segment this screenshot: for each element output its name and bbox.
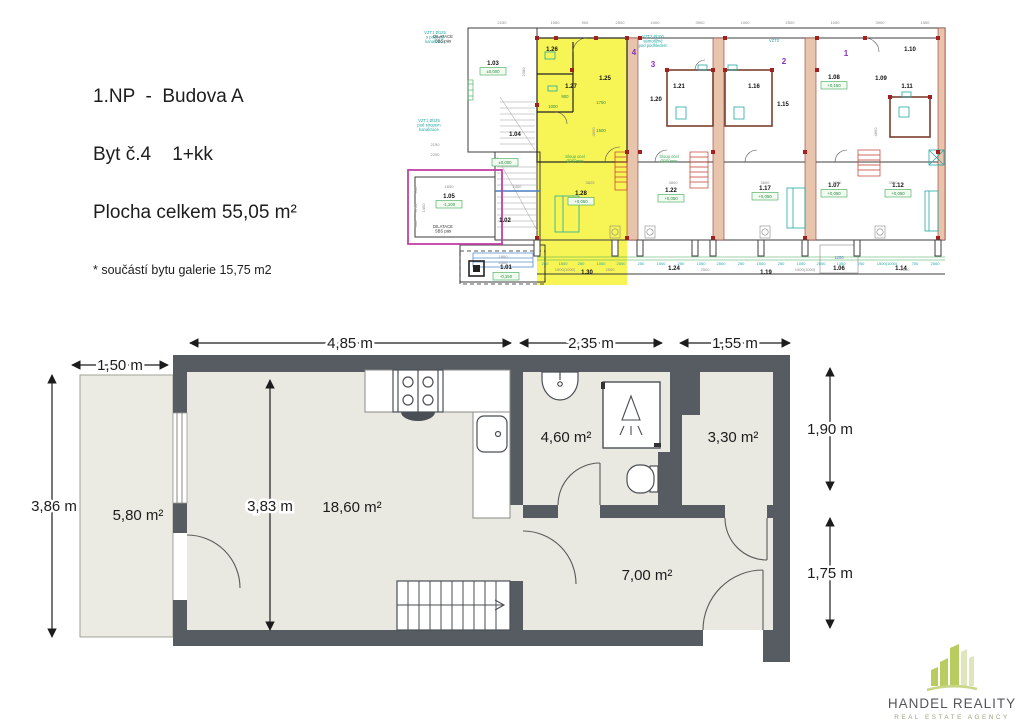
top-dim-10: 1550 bbox=[921, 20, 931, 25]
interior-dim-5: 1800 bbox=[499, 254, 509, 259]
bottom-dim-6: 1500 bbox=[657, 261, 667, 266]
bottom-dim-15: 1350 bbox=[837, 261, 847, 266]
room-label-1.02: 1.02 bbox=[499, 218, 511, 224]
elevation-6: +0,050 bbox=[758, 194, 772, 199]
left-dim-5: 4850 bbox=[591, 127, 596, 137]
elevation-8: +0,050 bbox=[827, 191, 841, 196]
main-floor-plan: 4,85 m 2,35 m 1,55 m 1,50 m 3,86 m 3,83 … bbox=[30, 330, 860, 670]
site-plan-drawing: 1.031.041.051.021.011.261.271.251.281.30… bbox=[405, 12, 1020, 297]
interior-dim-2: 3600 bbox=[761, 180, 771, 185]
interior-dim-4: 2400 bbox=[513, 184, 523, 189]
shower bbox=[601, 382, 661, 448]
top-dim-0: 2150 bbox=[498, 20, 508, 25]
elevation-3: -0,150 bbox=[500, 274, 513, 279]
bottom-dim-1: 1500 bbox=[559, 261, 569, 266]
room-label-1.20: 1.20 bbox=[650, 97, 662, 103]
top-dim-3: 2500 bbox=[616, 20, 626, 25]
area-hall: 7,00 m² bbox=[622, 567, 673, 584]
green-dim-2: 900 bbox=[561, 94, 569, 99]
dim-width-room: 1,55 m bbox=[712, 335, 758, 352]
room-label-1.10: 1.10 bbox=[904, 47, 916, 53]
elevation-0: ±0,000 bbox=[486, 69, 500, 74]
room-label-1.21: 1.21 bbox=[673, 84, 685, 90]
interior-dim-10: 2250 bbox=[431, 152, 441, 157]
unit-number-1: 1 bbox=[844, 49, 849, 58]
bottom-dim-8: 1050 bbox=[697, 261, 707, 266]
room-label-1.15: 1.15 bbox=[777, 102, 789, 108]
row2-dim-2: 2500 bbox=[701, 267, 711, 272]
unit-number-2: 2 bbox=[782, 57, 787, 66]
unit-number-3: 3 bbox=[651, 60, 656, 69]
bottom-dim-12: 250 bbox=[778, 261, 785, 266]
dim-width-terrace: 1,50 m bbox=[97, 357, 143, 374]
dim-height-room: 1,90 m bbox=[807, 421, 853, 438]
room-label-1.04: 1.04 bbox=[509, 132, 521, 138]
bottom-dim-7: 250 bbox=[678, 261, 685, 266]
room-label-1.09: 1.09 bbox=[875, 76, 887, 82]
header-gallery-note: * součástí bytu galerie 15,75 m2 bbox=[93, 262, 297, 279]
left-dim-4: 2080 bbox=[521, 67, 526, 77]
green-dim-3: 1000 bbox=[548, 104, 558, 109]
unit-number-4: 4 bbox=[632, 48, 637, 57]
room-label-1.22: 1.22 bbox=[665, 188, 677, 194]
green-dim-1: 1500 bbox=[596, 128, 606, 133]
room-label-1.25: 1.25 bbox=[599, 76, 611, 82]
interior-dim-3: 3900 bbox=[889, 180, 899, 185]
elevation-9: +0,050 bbox=[891, 191, 905, 196]
annotation-8: 1200 bbox=[834, 255, 844, 260]
room-label-1.05: 1.05 bbox=[443, 194, 455, 200]
annotation-6: DILATACESBS pás bbox=[433, 34, 453, 44]
interior-dim-7: 1650 bbox=[445, 184, 455, 189]
header-apartment: Byt č.4 1+kk bbox=[93, 144, 297, 166]
bottom-dim-11: 1500 bbox=[757, 261, 767, 266]
agency-logo: HANDEL REALITY REAL ESTATE AGENCY & PROD… bbox=[886, 636, 1018, 724]
top-dim-4: 1000 bbox=[651, 20, 661, 25]
room-label-1.01: 1.01 bbox=[500, 265, 512, 271]
bathroom-cores bbox=[667, 70, 930, 137]
annotation-7: DILATACESBS pás bbox=[433, 224, 453, 234]
elevation-2: ±0,000 bbox=[498, 160, 512, 165]
green-dim-0: 1750 bbox=[596, 100, 606, 105]
top-dim-2: 900 bbox=[582, 20, 589, 25]
room-label-1.11: 1.11 bbox=[901, 84, 913, 90]
bottom-dim-3: 1050 bbox=[597, 261, 607, 266]
floor-plan-flyer: 1.NP - Budova A Byt č.4 1+kk Plocha celk… bbox=[0, 0, 1024, 724]
logo-name: HANDEL REALITY bbox=[886, 696, 1018, 711]
bottom-dim-18: 750 bbox=[912, 261, 919, 266]
elevation-4: +0,050 bbox=[574, 199, 588, 204]
annotation-3: VZT2 bbox=[769, 38, 780, 43]
row2-dim-3: 1500(1000) bbox=[795, 267, 816, 272]
top-dim-1: 1550 bbox=[551, 20, 561, 25]
room-label-1.28: 1.28 bbox=[575, 191, 587, 197]
top-dim-5: 3900 bbox=[696, 20, 706, 25]
row2-dim-1: 2500 bbox=[606, 267, 616, 272]
terrace-window bbox=[173, 413, 187, 503]
annotation-4: Sloup ocelØ250mm bbox=[565, 154, 585, 164]
bottom-dim-10: 250 bbox=[738, 261, 745, 266]
bottom-dim-5: 250 bbox=[638, 261, 645, 266]
room-label-1.24: 1.24 bbox=[668, 266, 680, 272]
left-dim-2: 300 bbox=[413, 220, 418, 227]
room-label-1.26: 1.26 bbox=[546, 47, 558, 53]
interior-dim-0: 3825 bbox=[586, 180, 596, 185]
bottom-dim-9: 2500 bbox=[717, 261, 727, 266]
room-label-1.06: 1.06 bbox=[833, 266, 845, 272]
left-dim-0: 3750 bbox=[413, 203, 418, 213]
bottom-dim-0: 250 bbox=[542, 261, 549, 266]
top-dim-9: 3900 bbox=[876, 20, 886, 25]
room-label-1.30: 1.30 bbox=[581, 270, 593, 276]
bottom-dim-19: 2500 bbox=[931, 261, 941, 266]
left-dim-1: 900 bbox=[413, 186, 418, 193]
elevation-5: +0,050 bbox=[664, 196, 678, 201]
logo-tagline1: REAL ESTATE AGENCY bbox=[886, 714, 1018, 721]
bottom-dim-17: 1500(1000) bbox=[877, 261, 898, 266]
bottom-dim-16: 250 bbox=[858, 261, 865, 266]
room-label-1.27: 1.27 bbox=[565, 84, 577, 90]
dim-height-hall: 1,75 m bbox=[807, 565, 853, 582]
top-dim-8: 1000 bbox=[831, 20, 841, 25]
bottom-dim-2: 250 bbox=[578, 261, 585, 266]
elevation-7: +0,150 bbox=[827, 83, 841, 88]
area-room: 3,30 m² bbox=[708, 429, 759, 446]
bottom-dim-14: 2500 bbox=[817, 261, 827, 266]
dim-height-living: 3,83 m bbox=[247, 498, 293, 515]
left-dim-6: 4850 bbox=[873, 127, 878, 137]
header-floor-building: 1.NP - Budova A bbox=[93, 86, 297, 108]
bottom-dim-13: 1050 bbox=[797, 261, 807, 266]
stairs bbox=[397, 581, 510, 630]
interior-dim-8: 2150 bbox=[431, 142, 441, 147]
terrace-area bbox=[80, 375, 173, 637]
room-label-1.19: 1.19 bbox=[760, 270, 772, 276]
bottom-dim-4: 2500 bbox=[617, 261, 627, 266]
area-living: 18,60 m² bbox=[322, 499, 381, 516]
room-label-1.08: 1.08 bbox=[828, 75, 840, 81]
annotation-1: VZT1 Ø125pod stropemkanalizace bbox=[417, 118, 441, 132]
header-block: 1.NP - Budova A Byt č.4 1+kk Plocha celk… bbox=[93, 50, 297, 315]
row2-dim-4: 2500 bbox=[901, 267, 911, 272]
interior-dim-6: 2400 bbox=[499, 260, 509, 265]
top-dim-7: 2500 bbox=[786, 20, 796, 25]
kitchen-sink bbox=[477, 416, 507, 452]
room-label-1.17: 1.17 bbox=[759, 186, 771, 192]
room-label-1.16: 1.16 bbox=[748, 84, 760, 90]
left-dim-3: 1450 bbox=[421, 203, 426, 213]
toilet bbox=[627, 465, 658, 493]
interior-dim-1: 3800 bbox=[669, 180, 679, 185]
top-dim-6: 1000 bbox=[741, 20, 751, 25]
interior-dim-9: 1500 bbox=[833, 180, 843, 185]
dim-height-terrace: 3,86 m bbox=[31, 498, 77, 515]
area-terrace: 5,80 m² bbox=[113, 507, 164, 524]
dim-width-bath: 2,35 m bbox=[568, 335, 614, 352]
annotation-2: VZT2 Ø100samotížnépod podhledem bbox=[639, 34, 668, 48]
area-bathroom: 4,60 m² bbox=[541, 429, 592, 446]
row2-dim-0: 1500(1000) bbox=[555, 267, 576, 272]
dim-width-living: 4,85 m bbox=[327, 335, 373, 352]
header-total-area: Plocha celkem 55,05 m² bbox=[93, 202, 297, 224]
annotation-5: Sloup ocelØ250mm bbox=[659, 154, 679, 164]
logo-buildings-icon bbox=[924, 636, 980, 694]
room-label-1.03: 1.03 bbox=[487, 61, 499, 67]
elevation-1: -1,100 bbox=[443, 202, 456, 207]
